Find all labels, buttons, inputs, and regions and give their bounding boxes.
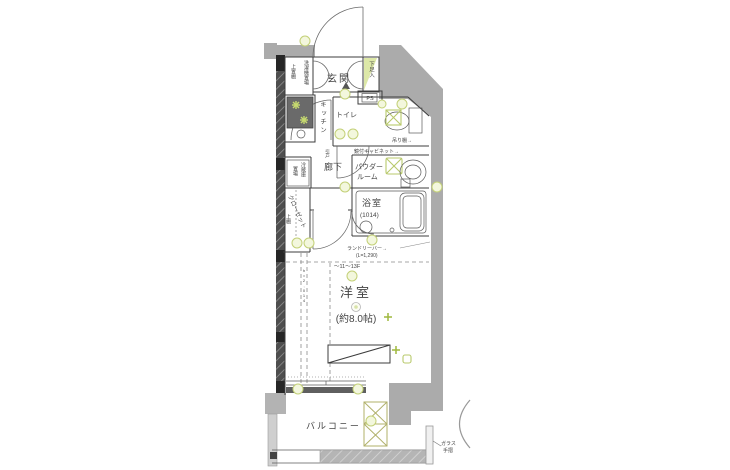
- floor-plan-page: 玄関 下足入 洗濯機置場 上置棚 PS キッチン トイレ 吊り棚→ 鏡付キャビネ…: [0, 0, 730, 470]
- label-fridge-2: 置場: [292, 166, 298, 177]
- label-floors-note: 〜11〜13F: [334, 264, 361, 270]
- label-bath-size: (1014): [360, 212, 379, 219]
- section-curve: [460, 400, 471, 448]
- label-fridge-1: 冷蔵庫: [300, 161, 306, 178]
- stove-icon: [287, 97, 313, 128]
- label-powder-2: ルーム: [357, 173, 378, 181]
- concrete-wall: [276, 55, 285, 395]
- label-closet-shelf: 上棚: [285, 213, 291, 225]
- label-mirror-cabinet: 鏡付キャビネット→: [354, 148, 399, 155]
- label-glass-1: ガラス: [441, 440, 456, 447]
- label-laundry-bar: ランドリーバー→: [347, 246, 387, 252]
- label-shoe-box: 下足入: [368, 61, 375, 78]
- label-toilet: トイレ: [336, 112, 357, 119]
- label-balcony: バルコニー: [306, 421, 361, 431]
- washer-pan-icon: [386, 158, 402, 174]
- label-main-room: 洋室: [340, 285, 372, 300]
- plus-marker: [384, 313, 400, 354]
- label-kitchen: キッチン: [319, 101, 327, 135]
- outlet-icon: [403, 355, 411, 363]
- bathtub-icon: [400, 193, 424, 231]
- label-closet: クローゼット: [286, 194, 308, 230]
- label-washer-shelf: 上置棚: [290, 63, 296, 80]
- label-glass-2: 手摺: [443, 447, 453, 454]
- label-main-room-size: (約8.0帖): [336, 312, 377, 325]
- label-ps: PS: [366, 96, 374, 102]
- room-door-arc: [313, 211, 351, 249]
- label-beam-note: h=2,014: [302, 268, 307, 303]
- label-laundry-len: (L=1,290): [356, 253, 378, 259]
- label-hallway: 廊下: [324, 161, 342, 172]
- washbasin-icon: [400, 160, 426, 184]
- label-hall-door: 引戸: [325, 148, 331, 160]
- floor-plan: 玄関 下足入 洗濯機置場 上置棚 PS キッチン トイレ 吊り棚→ 鏡付キャビネ…: [0, 0, 730, 470]
- label-toilet-shelf: 吊り棚→: [392, 137, 412, 144]
- toilet-tank-icon: [409, 108, 422, 133]
- label-powder-1: パウダー: [355, 162, 383, 171]
- label-washer: 洗濯機置場: [303, 59, 309, 86]
- bath-stool-icon: [360, 221, 372, 233]
- glass-railing: [426, 426, 433, 464]
- label-bath: 浴室: [362, 197, 382, 208]
- label-genkan: 玄関: [327, 72, 351, 85]
- entrance-door-arc: [313, 7, 363, 57]
- kitchen-sink-icon: [297, 130, 305, 138]
